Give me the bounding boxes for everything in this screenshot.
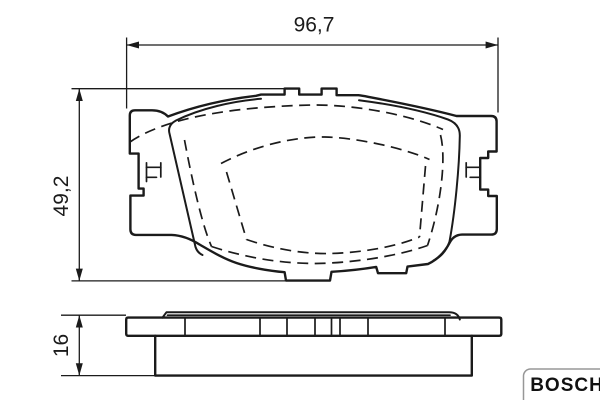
side-friction-block [155,336,472,376]
height-value: 49,2 [50,176,73,217]
arrowhead-right [486,42,498,49]
left-clip-mark [147,163,161,182]
side-division-lines [185,318,445,336]
arrowhead-bottom [76,363,83,375]
arrowhead-top [76,315,83,327]
arrowhead-bottom [76,269,83,281]
arrowhead-left [127,42,139,49]
friction-contact-left-inner [227,172,247,240]
friction-chamfer-left-outer [185,140,212,247]
technical-drawing-page: 96,7 49,2 16 BOSCH [0,0,600,400]
friction-edge-right [359,100,460,260]
friction-chamfer-top-outer [130,105,443,142]
friction-contact-top-inner [221,137,430,164]
arrowhead-top [76,89,83,101]
dimension-width: 96,7 [127,14,498,113]
side-view-drawing [126,312,501,375]
width-value: 96,7 [294,14,335,37]
brake-pad-drawing: 96,7 49,2 16 BOSCH [0,0,600,400]
right-clip-mark [466,163,480,178]
friction-edge-left [169,99,261,255]
friction-chamfer-right-outer [428,135,443,246]
logo-text: BOSCH [530,375,600,396]
friction-chamfer-bottom-outer [212,246,428,264]
thickness-value: 16 [50,334,73,357]
dimension-thickness: 16 [50,315,155,375]
brand-logo: BOSCH [524,369,600,400]
top-view-drawing [130,89,497,281]
friction-contact-bottom-inner [247,237,420,254]
friction-contact-right-inner [420,166,426,237]
